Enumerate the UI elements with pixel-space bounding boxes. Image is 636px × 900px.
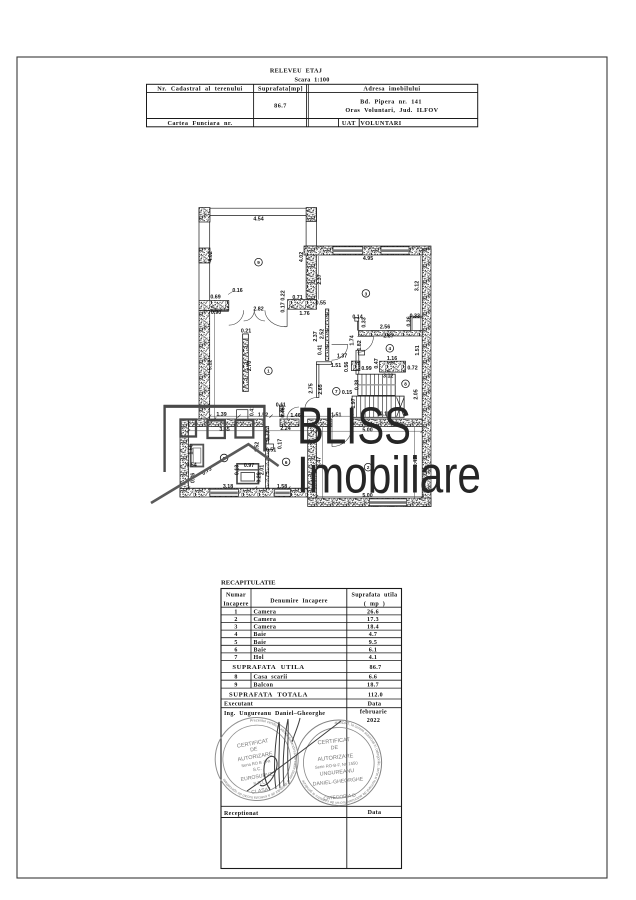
- svg-text:2.70: 2.70: [247, 361, 253, 371]
- svg-text:1.52: 1.52: [258, 413, 268, 419]
- svg-text:Nr. Cadastral al terenului: Nr. Cadastral al terenului: [157, 86, 242, 93]
- svg-text:Adresa imobilului: Adresa imobilului: [363, 86, 420, 93]
- svg-text:Scara 1:100: Scara 1:100: [294, 77, 329, 84]
- svg-text:februarie: februarie: [360, 710, 387, 716]
- svg-text:Ing. Ungureanu Daniel–Gheorg: Ing. Ungureanu Daniel–Gheorghe: [224, 711, 325, 717]
- svg-text:9: 9: [234, 682, 237, 688]
- svg-text:0.17: 0.17: [278, 439, 284, 449]
- svg-text:3.12: 3.12: [414, 281, 420, 291]
- svg-text:Suprafata[mp]: Suprafata[mp]: [258, 86, 303, 93]
- svg-text:4: 4: [234, 632, 237, 638]
- svg-text:2022: 2022: [367, 718, 380, 724]
- svg-text:2.87: 2.87: [383, 333, 393, 339]
- svg-text:Incapere: Incapere: [223, 602, 248, 608]
- svg-text:Balcon: Balcon: [254, 682, 274, 688]
- svg-text:17.3: 17.3: [367, 617, 379, 623]
- svg-text:1.74: 1.74: [350, 335, 356, 345]
- svg-text:Baie: Baie: [254, 647, 267, 653]
- svg-text:4.1: 4.1: [369, 655, 378, 661]
- svg-text:0.22: 0.22: [280, 290, 286, 300]
- svg-text:0.51: 0.51: [266, 447, 276, 453]
- svg-text:2.24: 2.24: [280, 426, 290, 432]
- svg-text:0.47: 0.47: [374, 358, 380, 368]
- svg-text:SUPRAFATA TOTALA: SUPRAFATA TOTALA: [229, 691, 308, 698]
- svg-text:4.7: 4.7: [369, 632, 378, 638]
- svg-text:5: 5: [234, 640, 237, 646]
- svg-text:0.38: 0.38: [355, 380, 361, 390]
- svg-text:1.76: 1.76: [299, 311, 309, 317]
- svg-text:0.97: 0.97: [244, 463, 254, 469]
- svg-text:Camera: Camera: [254, 617, 277, 623]
- svg-text:Data: Data: [368, 702, 382, 708]
- svg-text:4.02: 4.02: [208, 251, 214, 261]
- svg-text:0.41: 0.41: [318, 345, 324, 355]
- svg-text:Casa scarii: Casa scarii: [254, 675, 288, 681]
- svg-text:Receptionat: Receptionat: [224, 811, 259, 817]
- svg-text:1.51: 1.51: [331, 363, 341, 369]
- svg-text:VOLUNTARI: VOLUNTARI: [360, 120, 401, 127]
- svg-text:7: 7: [335, 389, 338, 394]
- svg-text:3: 3: [234, 625, 237, 631]
- svg-text:Oras Voluntari, Jud. ILFOV: Oras Voluntari, Jud. ILFOV: [345, 107, 438, 114]
- svg-text:5.12: 5.12: [208, 360, 214, 370]
- svg-text:2.56: 2.56: [380, 324, 390, 330]
- svg-text:1.51: 1.51: [415, 345, 421, 355]
- svg-text:0.36: 0.36: [406, 316, 412, 326]
- svg-text:2.75: 2.75: [309, 383, 315, 393]
- svg-text:Baie: Baie: [254, 640, 267, 646]
- svg-text:RELEVEU ETAJ: RELEVEU ETAJ: [270, 68, 322, 75]
- svg-text:2.37: 2.37: [313, 331, 319, 341]
- svg-text:9.5: 9.5: [369, 640, 378, 646]
- svg-text:1.39: 1.39: [216, 412, 226, 418]
- svg-text:0.55: 0.55: [316, 300, 326, 306]
- svg-text:112.0: 112.0: [368, 692, 383, 698]
- svg-text:6: 6: [285, 460, 288, 465]
- svg-text:0.46: 0.46: [280, 407, 286, 417]
- svg-text:( mp ): ( mp ): [364, 601, 385, 608]
- svg-text:18.4: 18.4: [367, 625, 379, 631]
- svg-text:4: 4: [389, 346, 392, 351]
- svg-text:2.05: 2.05: [413, 389, 419, 399]
- svg-text:6.6: 6.6: [369, 675, 378, 681]
- svg-text:86.7: 86.7: [370, 665, 382, 671]
- svg-text:3.12: 3.12: [383, 374, 393, 380]
- svg-text:DE: DE: [330, 745, 338, 752]
- svg-text:Denumire Incapere: Denumire Incapere: [270, 599, 327, 605]
- svg-text:6: 6: [234, 647, 237, 653]
- svg-text:9: 9: [257, 260, 260, 265]
- svg-text:0.15: 0.15: [342, 390, 352, 396]
- svg-text:Executant: Executant: [224, 702, 253, 708]
- svg-text:1.58: 1.58: [277, 484, 287, 490]
- svg-text:0.21: 0.21: [241, 329, 251, 335]
- svg-text:3.18: 3.18: [223, 484, 233, 490]
- svg-text:0.72: 0.72: [407, 365, 417, 371]
- svg-text:2.37: 2.37: [317, 274, 323, 284]
- svg-text:Camera: Camera: [254, 609, 277, 615]
- svg-text:1.50: 1.50: [188, 444, 194, 454]
- svg-text:0.16: 0.16: [232, 288, 242, 294]
- svg-text:Imobiliare: Imobiliare: [297, 447, 481, 505]
- svg-text:3: 3: [365, 291, 368, 296]
- svg-text:1: 1: [234, 609, 237, 615]
- svg-text:18.7: 18.7: [367, 682, 379, 688]
- svg-text:4.54: 4.54: [253, 216, 263, 222]
- svg-text:0.54: 0.54: [186, 462, 196, 468]
- svg-text:RECAPITULATIE: RECAPITULATIE: [221, 579, 276, 586]
- svg-text:4.02: 4.02: [299, 252, 305, 262]
- svg-text:0.33: 0.33: [362, 317, 368, 327]
- svg-text:8: 8: [234, 675, 237, 681]
- svg-text:Bd. Pipera nr. 141: Bd. Pipera nr. 141: [360, 99, 422, 106]
- svg-text:2.52: 2.52: [320, 329, 326, 339]
- svg-text:Suprafata utila: Suprafata utila: [352, 593, 398, 599]
- svg-text:86.7: 86.7: [274, 103, 287, 110]
- svg-text:2.65: 2.65: [318, 384, 324, 394]
- svg-text:Baie: Baie: [254, 632, 267, 638]
- svg-text:SUPRAFATA UTILA: SUPRAFATA UTILA: [232, 664, 304, 671]
- svg-text:2: 2: [234, 617, 237, 623]
- svg-text:6.1: 6.1: [369, 647, 378, 653]
- svg-text:0.99: 0.99: [361, 366, 371, 372]
- svg-text:0.90: 0.90: [211, 310, 221, 316]
- svg-text:7: 7: [234, 655, 237, 661]
- svg-text:1.82: 1.82: [357, 340, 363, 350]
- svg-text:0.56: 0.56: [344, 362, 350, 372]
- svg-text:4.95: 4.95: [363, 256, 373, 262]
- svg-text:26.6: 26.6: [367, 609, 379, 615]
- svg-text:Numar: Numar: [226, 593, 246, 599]
- svg-text:Data: Data: [368, 810, 382, 816]
- svg-text:1.16: 1.16: [387, 356, 397, 362]
- svg-text:2.82: 2.82: [253, 306, 263, 312]
- svg-text:Camera: Camera: [254, 625, 277, 631]
- svg-text:UAT: UAT: [342, 120, 356, 127]
- svg-text:0.69: 0.69: [210, 294, 220, 300]
- svg-text:0.77: 0.77: [265, 430, 271, 440]
- svg-text:0.29: 0.29: [256, 472, 262, 482]
- svg-text:8: 8: [404, 382, 407, 387]
- svg-text:1: 1: [267, 369, 270, 374]
- svg-text:0.71: 0.71: [292, 295, 302, 301]
- svg-text:0.13: 0.13: [235, 465, 241, 475]
- svg-text:0.17: 0.17: [280, 302, 286, 312]
- svg-text:Cartea Funciara nr.: Cartea Funciara nr.: [167, 120, 232, 127]
- svg-text:1.37: 1.37: [337, 353, 347, 359]
- svg-text:Hol: Hol: [254, 655, 264, 661]
